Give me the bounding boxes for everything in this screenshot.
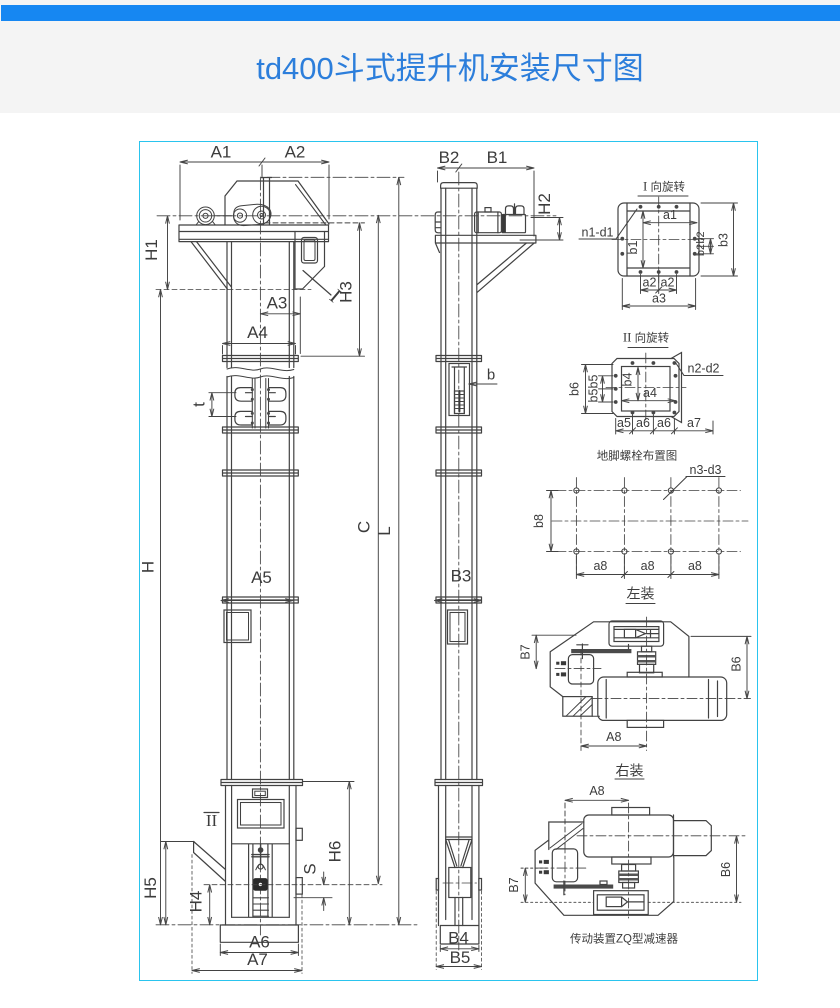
svg-text:B6: B6 (719, 862, 733, 877)
svg-text:H5: H5 (141, 877, 160, 899)
svg-text:b8: b8 (532, 514, 546, 528)
svg-text:b5: b5 (587, 389, 601, 403)
svg-text:a3: a3 (652, 292, 666, 306)
svg-text:a8: a8 (593, 559, 607, 573)
svg-text:B3: B3 (451, 567, 472, 586)
svg-text:b2: b2 (695, 231, 707, 243)
svg-text:a5: a5 (617, 416, 631, 430)
svg-text:C: C (355, 521, 374, 533)
svg-text:B4: B4 (448, 929, 469, 948)
svg-text:L: L (375, 526, 394, 535)
svg-text:H2: H2 (535, 193, 554, 215)
svg-text:S: S (301, 863, 320, 874)
svg-text:B2: B2 (439, 148, 460, 167)
svg-text:a8: a8 (688, 559, 702, 573)
svg-text:n1-d1: n1-d1 (582, 226, 614, 240)
svg-text:b3: b3 (717, 233, 731, 247)
svg-text:B7: B7 (507, 877, 521, 892)
svg-text:t: t (190, 402, 209, 407)
svg-text:b6: b6 (568, 382, 582, 396)
svg-text:II 向旋转: II 向旋转 (623, 330, 670, 345)
svg-text:a1: a1 (663, 208, 677, 222)
svg-text:B5: B5 (450, 948, 471, 967)
svg-text:右装: 右装 (616, 763, 644, 779)
svg-text:A8: A8 (589, 784, 604, 798)
svg-text:a2: a2 (661, 276, 675, 290)
svg-text:H4: H4 (187, 891, 206, 913)
svg-text:B7: B7 (519, 644, 533, 659)
svg-text:A8: A8 (606, 730, 621, 744)
svg-text:b5: b5 (587, 375, 601, 389)
svg-text:a6: a6 (636, 416, 650, 430)
svg-text:b: b (487, 367, 495, 384)
svg-text:a6: a6 (657, 416, 671, 430)
svg-text:A2: A2 (285, 143, 306, 162)
svg-text:b1: b1 (626, 241, 640, 255)
svg-text:a7: a7 (687, 416, 701, 430)
svg-text:A1: A1 (211, 143, 232, 162)
svg-text:a4: a4 (643, 386, 657, 400)
svg-text:B1: B1 (487, 148, 508, 167)
svg-text:地脚螺栓布置图: 地脚螺栓布置图 (597, 449, 678, 463)
svg-text:A4: A4 (247, 323, 268, 342)
svg-text:A6: A6 (249, 933, 270, 952)
svg-text:b2: b2 (695, 244, 707, 256)
svg-text:A5: A5 (251, 568, 272, 587)
svg-text:I 向旋转: I 向旋转 (643, 179, 686, 194)
svg-text:a8: a8 (641, 559, 655, 573)
svg-text:A7: A7 (247, 950, 268, 969)
svg-text:II: II (206, 811, 218, 830)
svg-text:H1: H1 (142, 239, 161, 261)
svg-text:a2: a2 (643, 276, 657, 290)
svg-text:n2-d2: n2-d2 (688, 362, 720, 376)
svg-text:A3: A3 (267, 294, 288, 313)
svg-text:左装: 左装 (627, 586, 655, 602)
svg-text:传动装置ZQ型减速器: 传动装置ZQ型减速器 (570, 932, 678, 946)
svg-text:b4: b4 (621, 373, 635, 387)
svg-text:H: H (139, 561, 158, 573)
svg-text:n3-d3: n3-d3 (690, 463, 722, 477)
svg-text:B6: B6 (730, 656, 744, 671)
svg-text:H6: H6 (326, 841, 345, 863)
